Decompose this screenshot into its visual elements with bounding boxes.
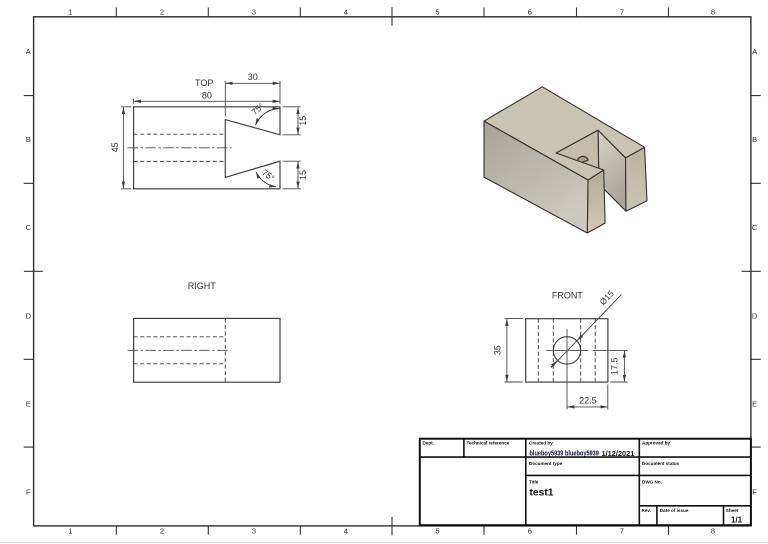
svg-text:DWG No.: DWG No. xyxy=(642,479,662,484)
svg-text:blueboy5939 blueboy5939: blueboy5939 blueboy5939 xyxy=(530,450,600,458)
svg-text:C: C xyxy=(752,223,758,232)
svg-text:6: 6 xyxy=(528,526,532,535)
svg-text:TOP: TOP xyxy=(195,78,213,88)
svg-text:Sheet: Sheet xyxy=(726,508,739,513)
svg-text:6: 6 xyxy=(528,8,532,17)
svg-text:B: B xyxy=(26,135,31,144)
svg-text:Approved by: Approved by xyxy=(642,441,671,446)
svg-text:8: 8 xyxy=(711,8,715,17)
svg-text:Created by: Created by xyxy=(529,441,553,446)
svg-text:5: 5 xyxy=(435,8,439,17)
svg-text:4: 4 xyxy=(344,526,348,535)
svg-text:30: 30 xyxy=(248,72,258,82)
svg-text:Document status: Document status xyxy=(642,461,680,466)
svg-text:4: 4 xyxy=(344,8,348,17)
svg-text:test1: test1 xyxy=(530,487,554,498)
svg-text:E: E xyxy=(26,399,31,408)
svg-text:15: 15 xyxy=(298,116,308,126)
svg-text:2: 2 xyxy=(160,526,164,535)
svg-text:D: D xyxy=(752,311,758,320)
svg-text:E: E xyxy=(752,399,757,408)
svg-text:Date of issue: Date of issue xyxy=(660,508,689,513)
svg-text:1/12/2021: 1/12/2021 xyxy=(602,449,635,458)
svg-text:B: B xyxy=(752,135,757,144)
svg-text:45: 45 xyxy=(110,142,120,152)
svg-text:FRONT: FRONT xyxy=(552,291,583,301)
svg-text:3: 3 xyxy=(252,8,256,17)
svg-text:35: 35 xyxy=(493,345,503,355)
svg-text:D: D xyxy=(26,311,32,320)
svg-text:1/1: 1/1 xyxy=(731,515,743,524)
svg-text:1: 1 xyxy=(68,8,72,17)
svg-text:RIGHT: RIGHT xyxy=(188,281,217,291)
svg-text:C: C xyxy=(26,223,32,232)
svg-text:22.5: 22.5 xyxy=(579,395,597,405)
svg-text:Dept.: Dept. xyxy=(423,441,434,446)
svg-text:Ø15: Ø15 xyxy=(597,288,616,307)
svg-text:5: 5 xyxy=(435,526,439,535)
svg-text:Technical reference: Technical reference xyxy=(467,441,510,446)
svg-text:80: 80 xyxy=(202,91,212,101)
svg-text:15: 15 xyxy=(298,170,308,180)
svg-text:Rev.: Rev. xyxy=(642,508,651,513)
svg-text:A: A xyxy=(752,47,757,56)
svg-text:7: 7 xyxy=(620,526,624,535)
svg-text:7: 7 xyxy=(620,8,624,17)
svg-text:2: 2 xyxy=(160,8,164,17)
svg-text:F: F xyxy=(26,487,31,496)
svg-text:F: F xyxy=(752,487,757,496)
svg-text:1: 1 xyxy=(68,526,72,535)
svg-text:3: 3 xyxy=(252,526,256,535)
svg-text:Title: Title xyxy=(529,479,539,484)
svg-text:8: 8 xyxy=(711,526,715,535)
svg-text:Document type: Document type xyxy=(529,461,563,466)
svg-text:17.5: 17.5 xyxy=(610,358,620,376)
svg-text:A: A xyxy=(26,47,31,56)
